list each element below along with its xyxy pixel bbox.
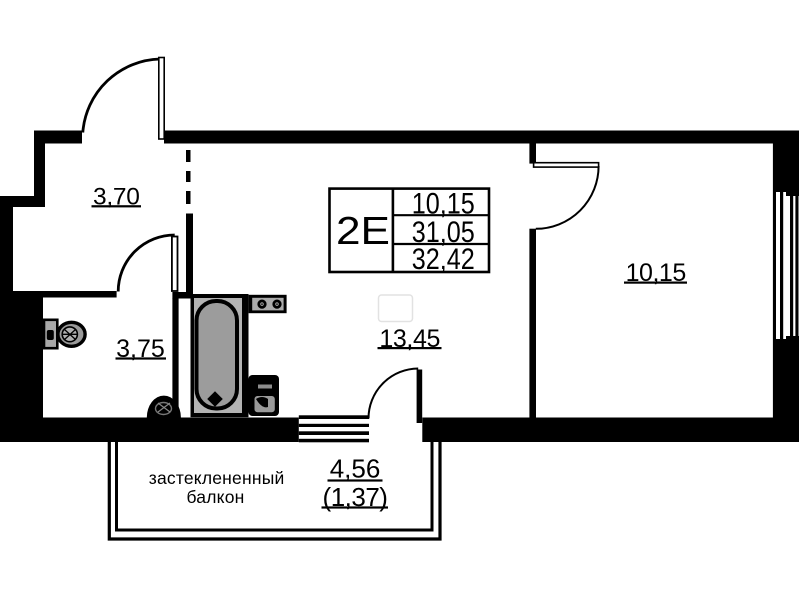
- svg-text:балкон: балкон: [186, 487, 244, 507]
- svg-text:2Е: 2Е: [336, 210, 390, 253]
- svg-text:4,56: 4,56: [330, 454, 381, 484]
- svg-text:32,42: 32,42: [412, 243, 475, 276]
- svg-text:застеклененный: застеклененный: [149, 468, 285, 488]
